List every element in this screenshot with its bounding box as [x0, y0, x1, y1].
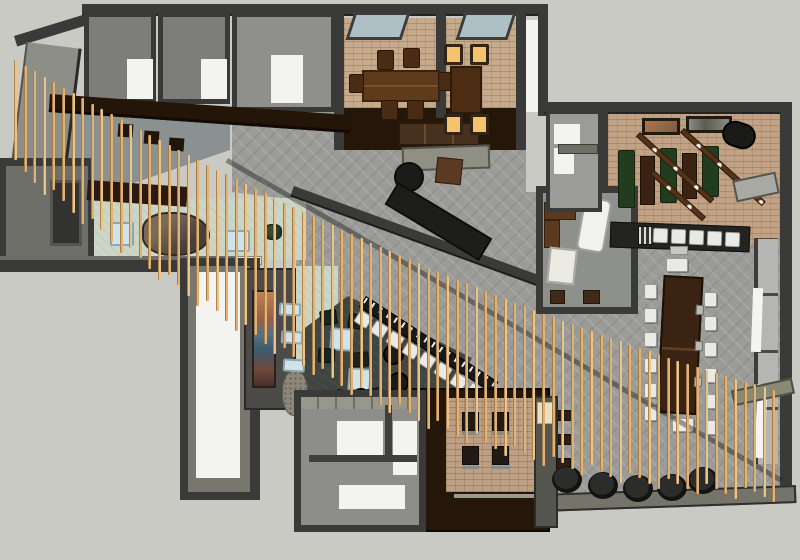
- nook-chair-base: [462, 432, 479, 435]
- lounge-chair: [319, 309, 338, 326]
- kitchen-equipment-1: [118, 123, 134, 137]
- dining1-chair: [381, 100, 398, 120]
- wing-artwork-1: [642, 118, 680, 135]
- prep-room: [232, 12, 336, 112]
- dining2-east-wall: [516, 14, 526, 150]
- office-stool-2: [583, 290, 600, 304]
- dining2-lit-chair: [444, 44, 463, 65]
- restroom-floor-1: [337, 421, 383, 455]
- reception-desk: [142, 212, 210, 256]
- west-wing-block: [0, 158, 94, 268]
- nook-chair-base: [492, 466, 509, 469]
- skylight-2: [455, 12, 516, 40]
- nook-chair: [492, 446, 509, 465]
- communal-table: [656, 275, 703, 415]
- wall-shelf-box: [558, 434, 573, 445]
- prep-room-door: [271, 55, 303, 103]
- kitchen-equipment-2: [144, 130, 160, 144]
- wood-side-table: [435, 157, 464, 186]
- wing-service-counter: [558, 144, 598, 154]
- dining2-lit-chair: [470, 44, 489, 65]
- restroom-floor-2: [393, 421, 417, 475]
- dining1-chair: [349, 74, 364, 93]
- wing-service-room-floor: [554, 124, 580, 144]
- dining1-chair: [403, 48, 420, 68]
- storage-room-2: [158, 12, 230, 104]
- office-bench: [546, 247, 578, 286]
- corridor-floor: [196, 272, 240, 478]
- nook-chair: [462, 446, 479, 465]
- wing-service-room: [546, 110, 602, 212]
- table-clamp: [696, 305, 705, 315]
- lounge-chair: [351, 351, 369, 368]
- office-stool-1: [550, 290, 565, 304]
- nook-chair-base: [462, 466, 479, 469]
- wall-shelf-box: [558, 410, 573, 421]
- nook-chair: [462, 412, 479, 431]
- mural-artwork: [252, 290, 276, 388]
- gallery-bench: [283, 358, 306, 372]
- restroom-tile-band: [301, 397, 419, 409]
- wall-east-of-hallway: [538, 4, 548, 116]
- table-clamp: [695, 341, 704, 351]
- gallery-bench: [279, 302, 302, 316]
- east-wall: [780, 102, 792, 486]
- dining2-table: [450, 66, 482, 114]
- booth-bench: [618, 150, 635, 208]
- dining2-lit-chair: [470, 114, 489, 135]
- wine-nook-shelf-line: [454, 494, 538, 498]
- dining-divider-wall: [436, 14, 446, 118]
- wing-counter-end-cap: [638, 226, 654, 245]
- wine-nook-brick-floor: [446, 398, 534, 492]
- entry-seat-1: [110, 222, 134, 246]
- dining2-lit-chair: [444, 114, 463, 135]
- wall-shelf-box: [556, 458, 571, 469]
- booth-table: [640, 156, 655, 205]
- dining1-table: [362, 70, 440, 102]
- servery-drawer-unit: [398, 122, 480, 146]
- floor-plan-render: [0, 0, 800, 560]
- gallery-bench: [281, 330, 304, 344]
- storage-room-1: [84, 12, 156, 104]
- restroom-block: [294, 390, 426, 532]
- restroom-inner-wall-h: [309, 455, 417, 462]
- dining1-chair: [407, 100, 424, 120]
- storage-room-2-door: [201, 59, 227, 99]
- storage-room-1-door: [127, 59, 153, 99]
- hallway-floor: [526, 20, 538, 112]
- wing-counter: [610, 222, 751, 253]
- office-desk-return: [544, 220, 560, 248]
- kitchen-equipment-3: [169, 137, 185, 151]
- restroom-floor-3: [339, 485, 405, 509]
- host-pillar-top: [537, 402, 555, 424]
- restroom-inner-wall-v: [385, 405, 392, 457]
- potted-plant: [264, 224, 282, 240]
- nook-chair-base: [492, 432, 509, 435]
- nook-chair: [492, 412, 509, 431]
- skylight-1: [345, 12, 410, 40]
- dining1-chair: [377, 50, 394, 70]
- table-clamp: [694, 377, 703, 387]
- lounge-chair: [317, 347, 335, 363]
- entry-seat-2: [226, 230, 250, 252]
- west-wing-door: [50, 180, 82, 246]
